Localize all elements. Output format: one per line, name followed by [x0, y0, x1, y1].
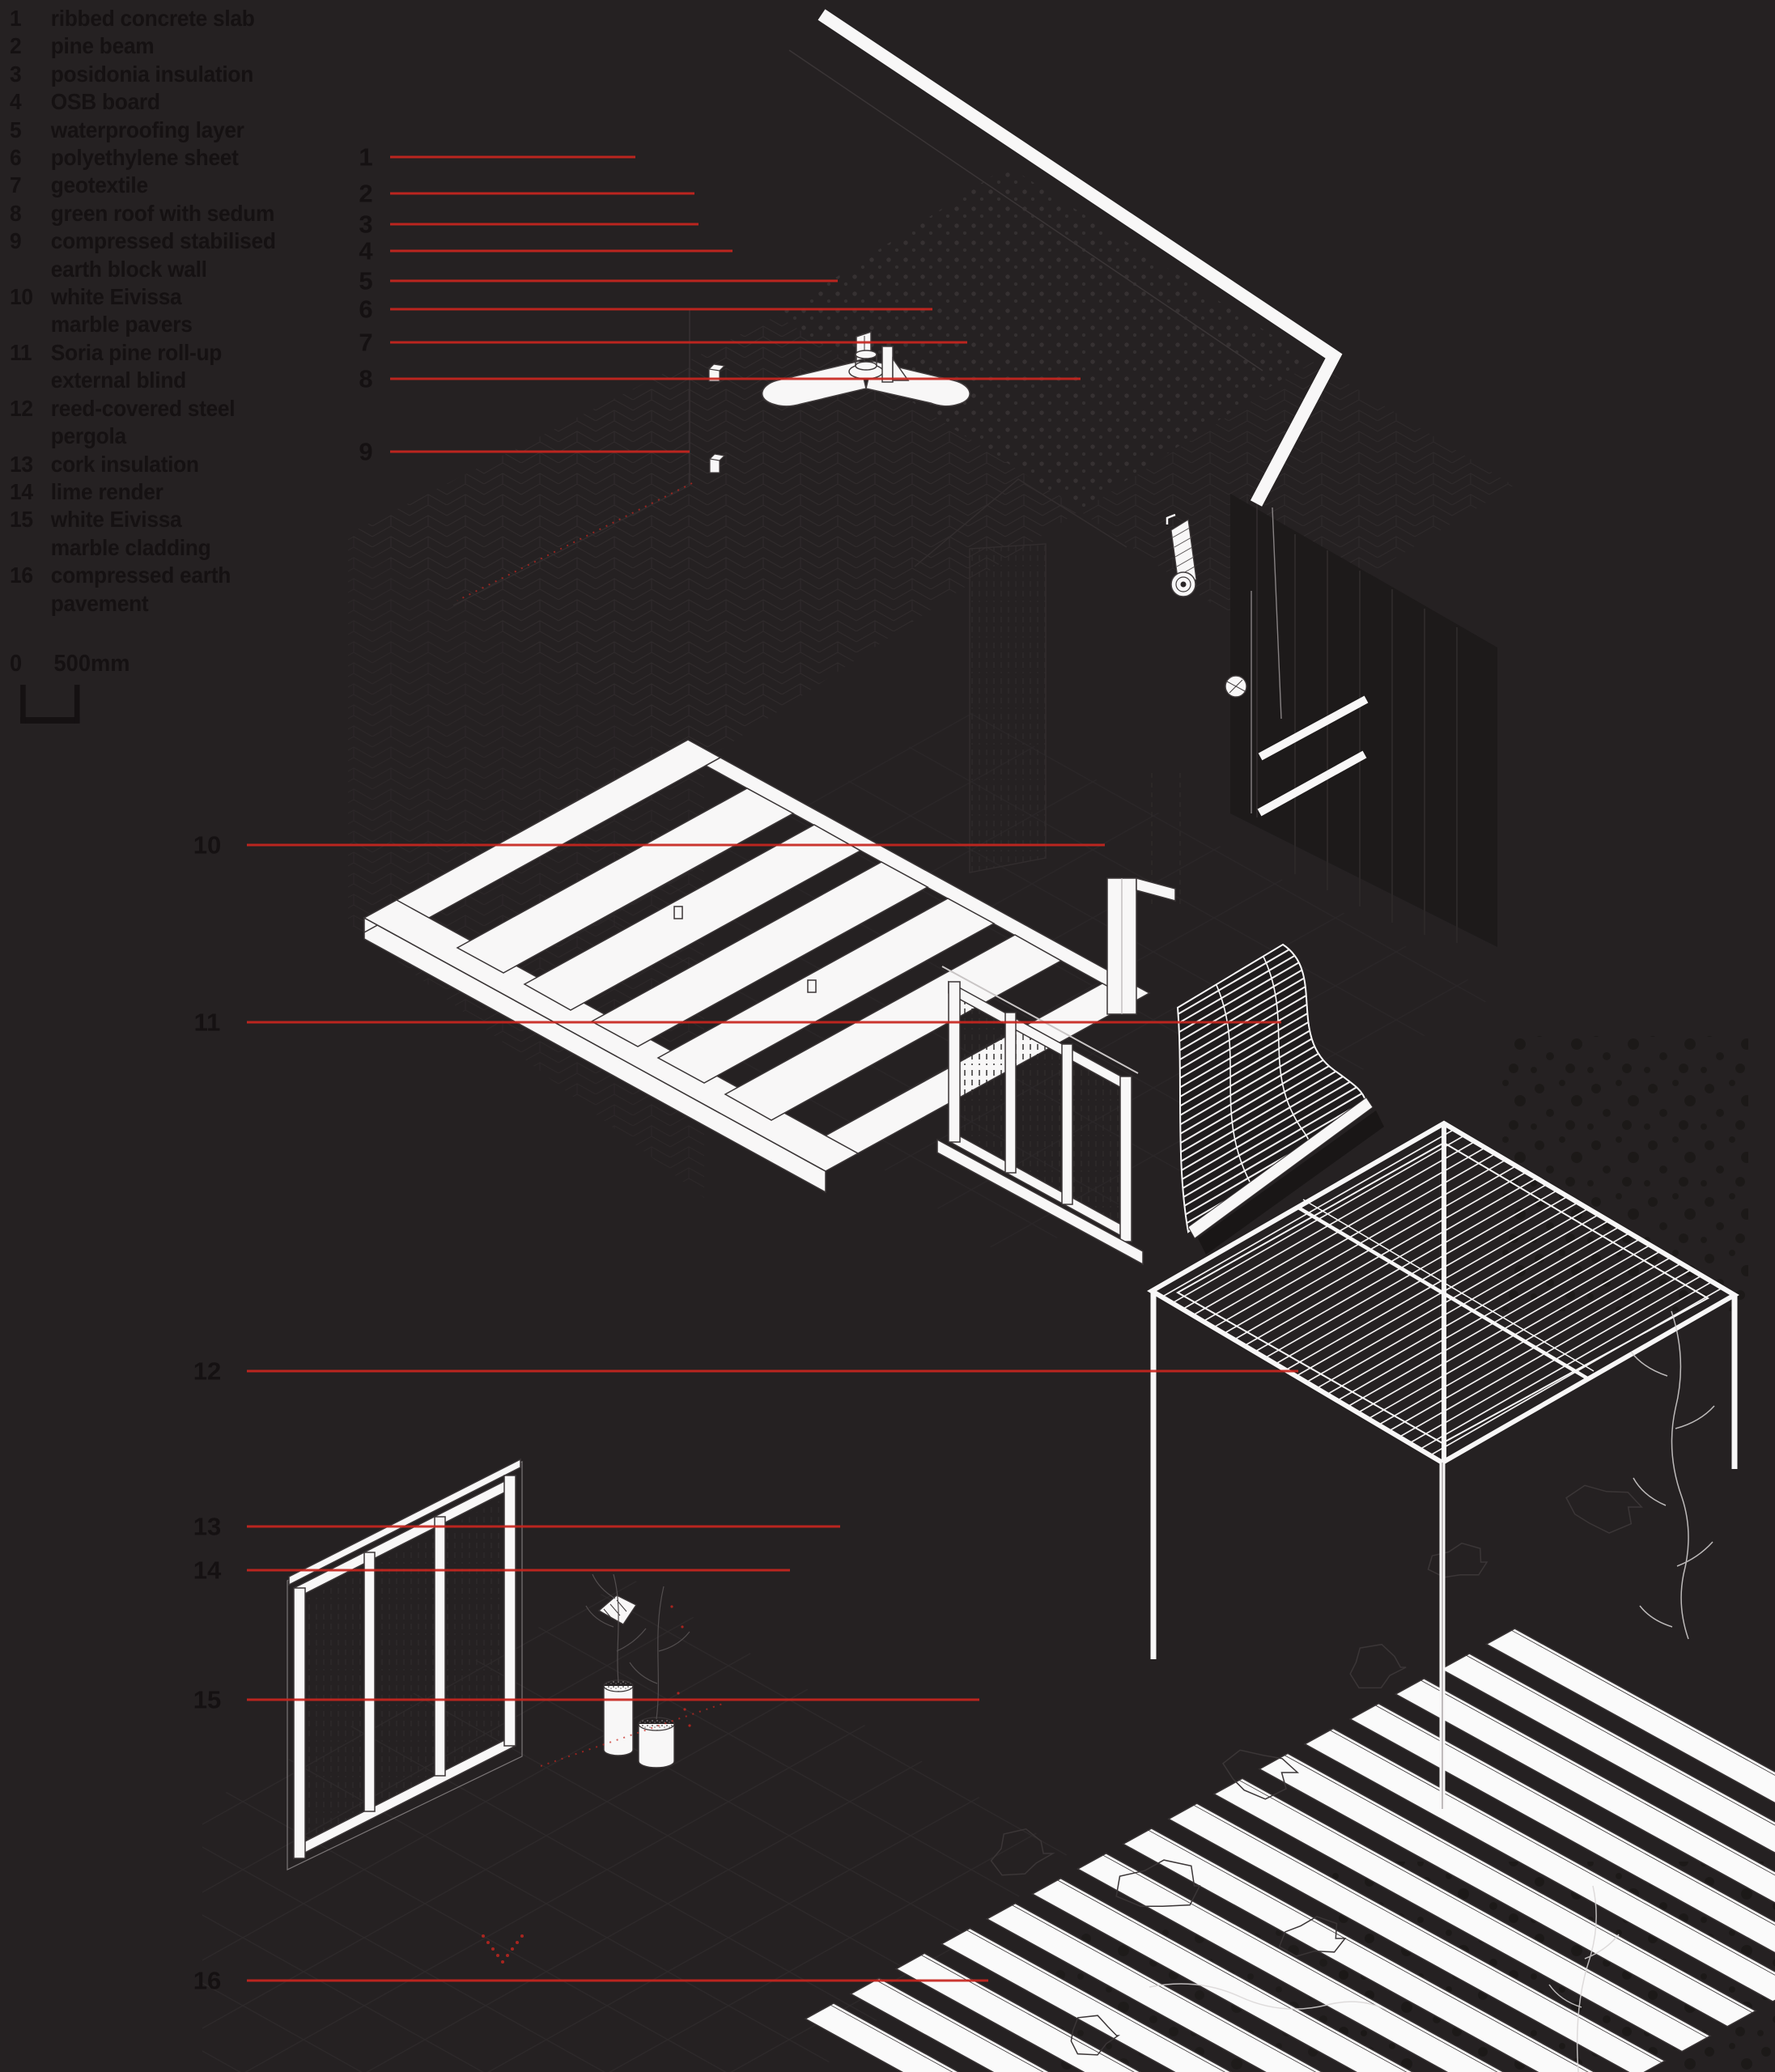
exploded-axonometric-drawing: 12345678910111213141516: [0, 0, 1775, 2072]
callout-number: 4: [359, 237, 373, 265]
callout-number: 11: [194, 1008, 221, 1037]
callout-number: 13: [193, 1513, 221, 1541]
callout-number: 15: [193, 1686, 221, 1714]
callout-number: 9: [359, 438, 372, 466]
callout-number: 1: [359, 143, 372, 172]
callout-number: 7: [359, 329, 372, 357]
callout-number: 16: [193, 1967, 221, 1995]
callout-number: 10: [193, 831, 221, 860]
exploded-axonometric-page: 1ribbed concrete slab2pine beam3posidoni…: [0, 0, 1775, 2072]
callout-number: 8: [359, 365, 372, 393]
shower-drain: [1225, 676, 1246, 697]
callout-number: 5: [359, 267, 372, 295]
vine-sketch: [1566, 1485, 1641, 1533]
foliage-shadow-right: [1497, 1036, 1748, 1311]
callout-number: 6: [359, 295, 372, 324]
callout-number: 14: [193, 1556, 222, 1585]
callout-number: 2: [359, 180, 372, 208]
vine-sketch: [1429, 1543, 1488, 1577]
vine-sketch: [1350, 1645, 1406, 1688]
callout-number: 3: [359, 210, 372, 239]
callout-number: 12: [193, 1357, 221, 1386]
